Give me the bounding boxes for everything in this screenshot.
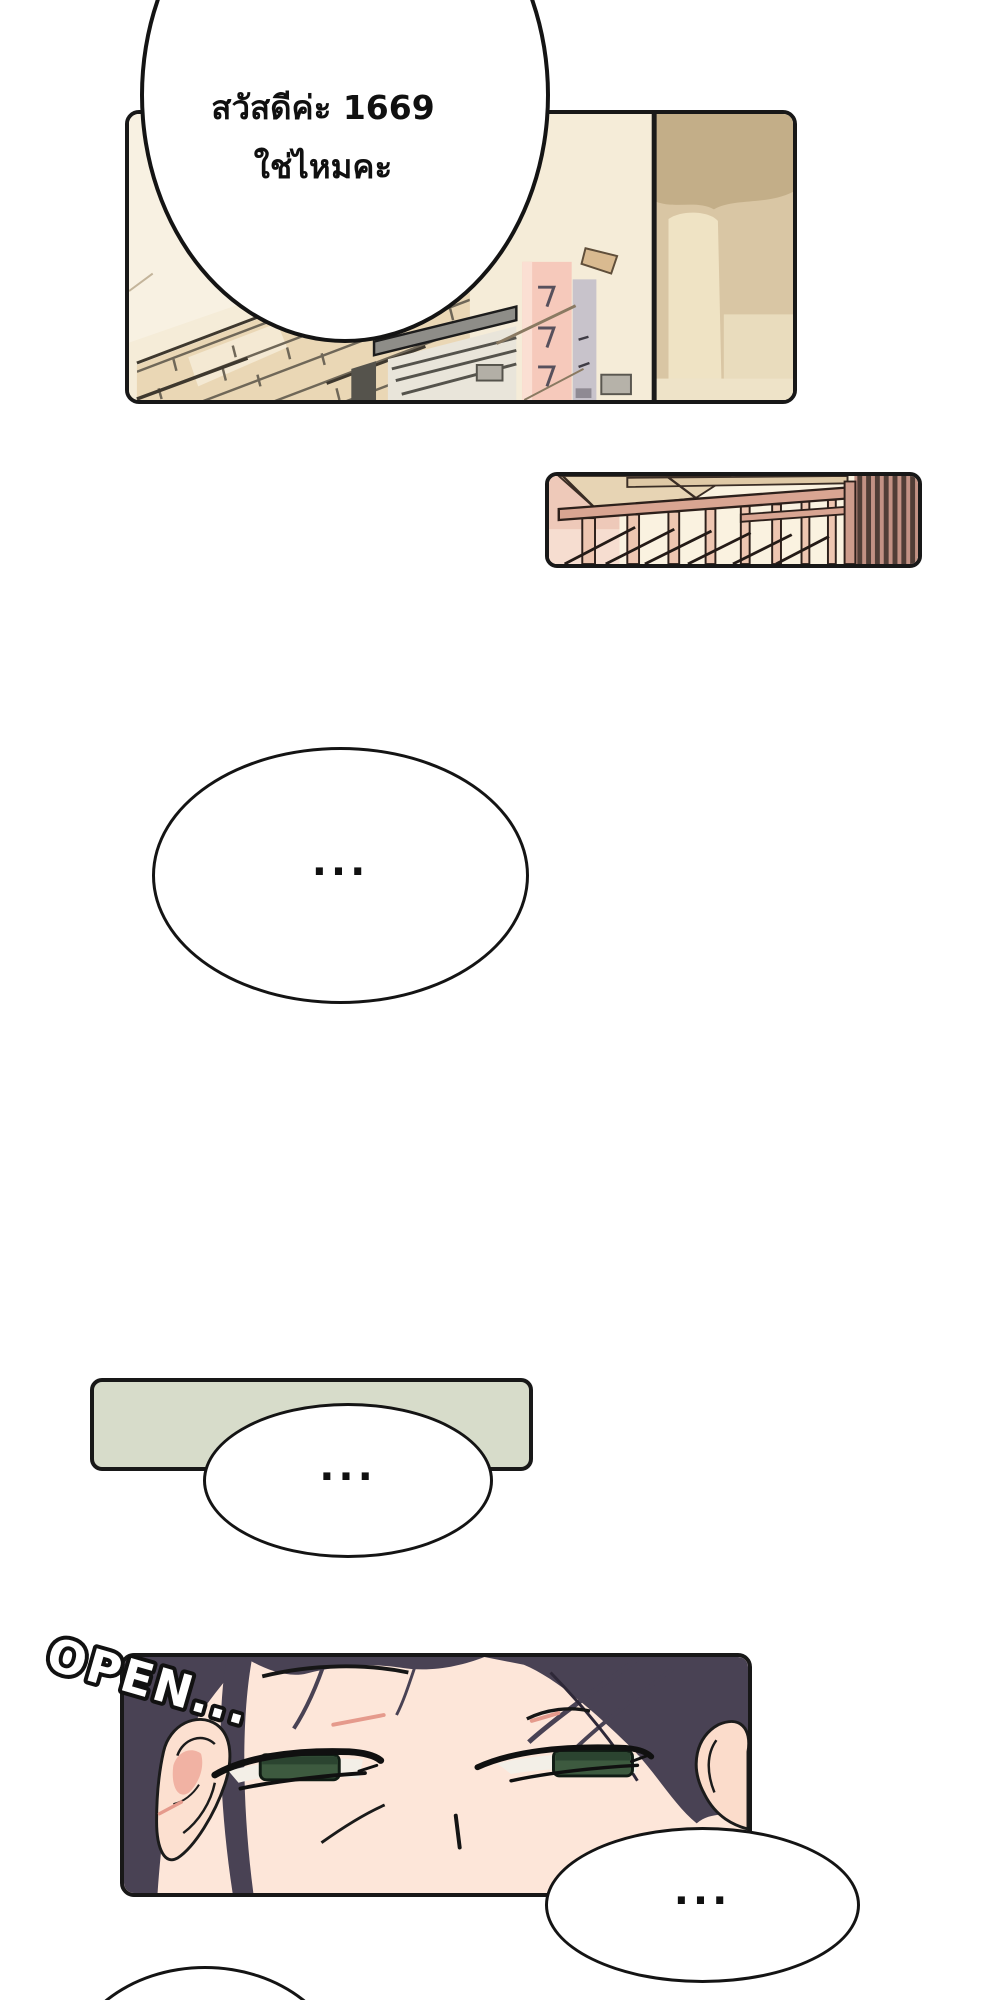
wall-box xyxy=(601,375,631,394)
speech-bubble-pause-1: ... xyxy=(152,747,529,1004)
greeting-line-2: ใช่ไหมคะ xyxy=(144,137,502,196)
sfx-open-lettering: OPEN... xyxy=(34,1612,244,1742)
comic-page: สวัสดีค่ะ 1669 ใช่ไหมคะ xyxy=(0,0,1000,2000)
panel-balcony-railing xyxy=(545,472,922,568)
speech-bubble-pause-2: ... xyxy=(203,1403,493,1558)
greeting-text: สวัสดีค่ะ 1669 ใช่ไหมคะ xyxy=(144,78,546,196)
side-wall xyxy=(652,114,793,400)
gray-strip xyxy=(573,279,597,400)
greeting-line-1: สวัสดีค่ะ 1669 xyxy=(144,78,502,137)
pause-dots-3: ... xyxy=(674,1868,732,1914)
dark-slats xyxy=(845,476,918,564)
railing-art xyxy=(549,476,918,564)
speech-bubble-partial xyxy=(65,1966,345,2000)
sfx-open-text: OPEN... xyxy=(41,1627,244,1737)
pause-dots-2: ... xyxy=(319,1444,377,1490)
pause-dots-1: ... xyxy=(312,839,370,885)
speech-bubble-pause-3: ... xyxy=(545,1827,860,1983)
panel-divider-line xyxy=(652,114,657,400)
